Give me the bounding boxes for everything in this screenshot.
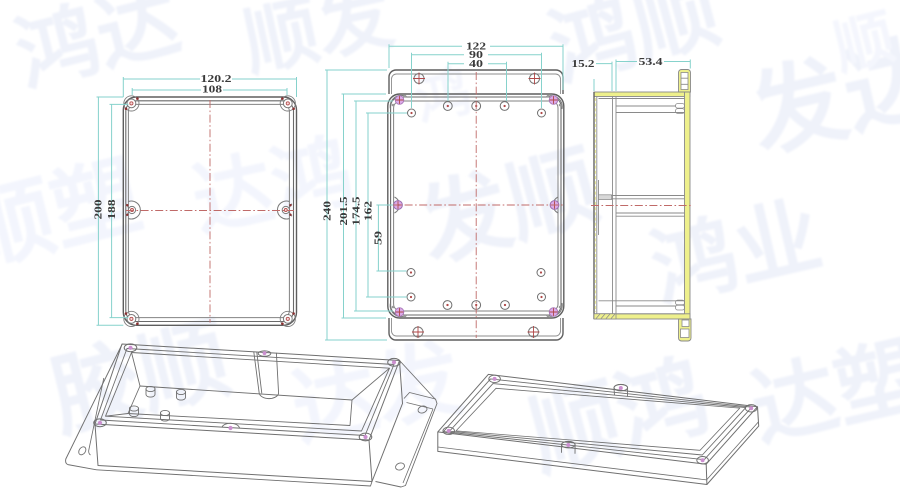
svg-text:120.2: 120.2	[201, 74, 232, 85]
svg-text:201.5: 201.5	[339, 197, 350, 226]
svg-text:200: 200	[94, 200, 105, 220]
svg-text:240: 240	[322, 201, 333, 221]
svg-text:59: 59	[374, 231, 385, 245]
svg-text:162: 162	[363, 201, 374, 221]
svg-text:108: 108	[202, 84, 222, 95]
svg-text:15.2: 15.2	[572, 59, 595, 70]
svg-text:53.4: 53.4	[639, 57, 664, 68]
svg-text:174.5: 174.5	[351, 197, 362, 226]
svg-text:188: 188	[107, 200, 118, 220]
svg-text:40: 40	[469, 59, 483, 70]
